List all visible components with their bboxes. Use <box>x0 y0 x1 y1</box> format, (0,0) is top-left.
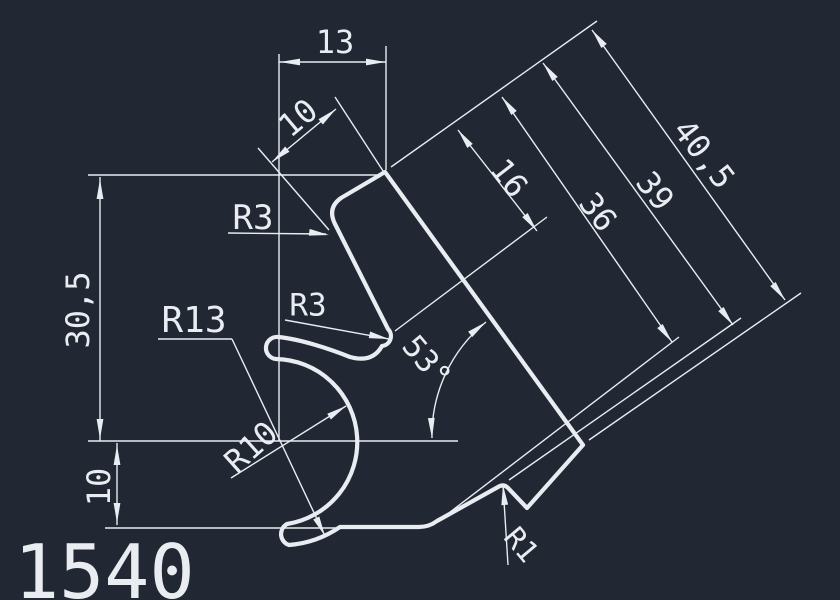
arrowhead <box>327 406 346 419</box>
radius-r3-lower-label: R3 <box>289 291 326 322</box>
arrowhead <box>313 517 325 536</box>
dim-10-left-label: 10 <box>83 468 115 507</box>
radius-r13-label: R13 <box>161 303 226 339</box>
radius-r3-upper-label: R3 <box>233 201 274 235</box>
arrowhead <box>272 147 290 162</box>
drawing-geometry <box>0 0 840 600</box>
arrowhead <box>366 59 386 66</box>
thin-line <box>395 217 547 331</box>
part-number: 1540 <box>14 535 195 600</box>
dimension-and-extension-lines <box>88 21 801 565</box>
arrowhead <box>458 130 473 148</box>
arrowhead <box>718 307 733 325</box>
dim-13-label: 13 <box>316 26 355 58</box>
arrowhead <box>97 179 104 199</box>
arrowhead <box>114 445 121 465</box>
arrowhead <box>309 229 329 236</box>
arrowhead <box>468 322 486 337</box>
arrowhead <box>543 63 558 81</box>
arrowhead <box>369 332 389 339</box>
arrowhead <box>770 282 785 300</box>
thin-line <box>335 97 385 174</box>
arrowhead <box>592 30 607 48</box>
thin-line <box>509 318 741 480</box>
arrowhead <box>97 419 104 439</box>
dim-30-5-label: 30,5 <box>62 271 94 348</box>
thin-line <box>441 337 679 519</box>
arrowhead <box>657 324 672 342</box>
arrowhead <box>522 213 537 231</box>
arrowhead <box>280 59 300 66</box>
dimension-arrowheads <box>97 30 785 536</box>
arrowhead <box>502 97 517 115</box>
thin-line <box>589 293 801 440</box>
cad-canvas: 13 10 30,5 10 16 36 39 40,5 53° R13 R10 … <box>0 0 840 600</box>
